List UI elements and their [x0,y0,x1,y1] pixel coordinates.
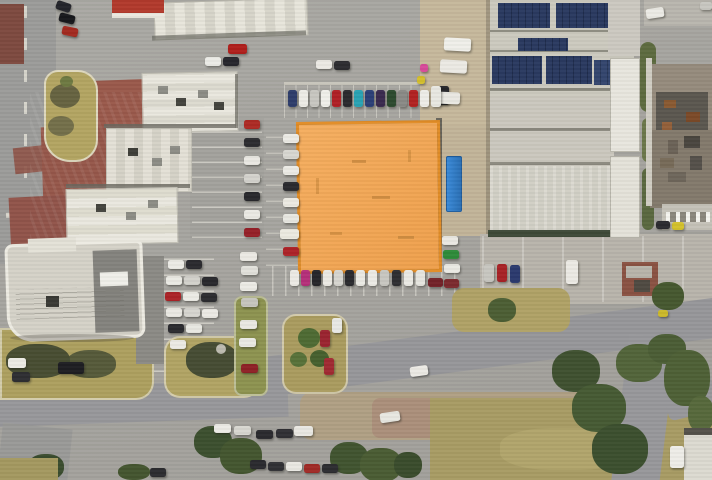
aerial-photo [0,0,712,480]
photo-grain-overlay [0,0,712,480]
aerial-scene [0,0,712,480]
